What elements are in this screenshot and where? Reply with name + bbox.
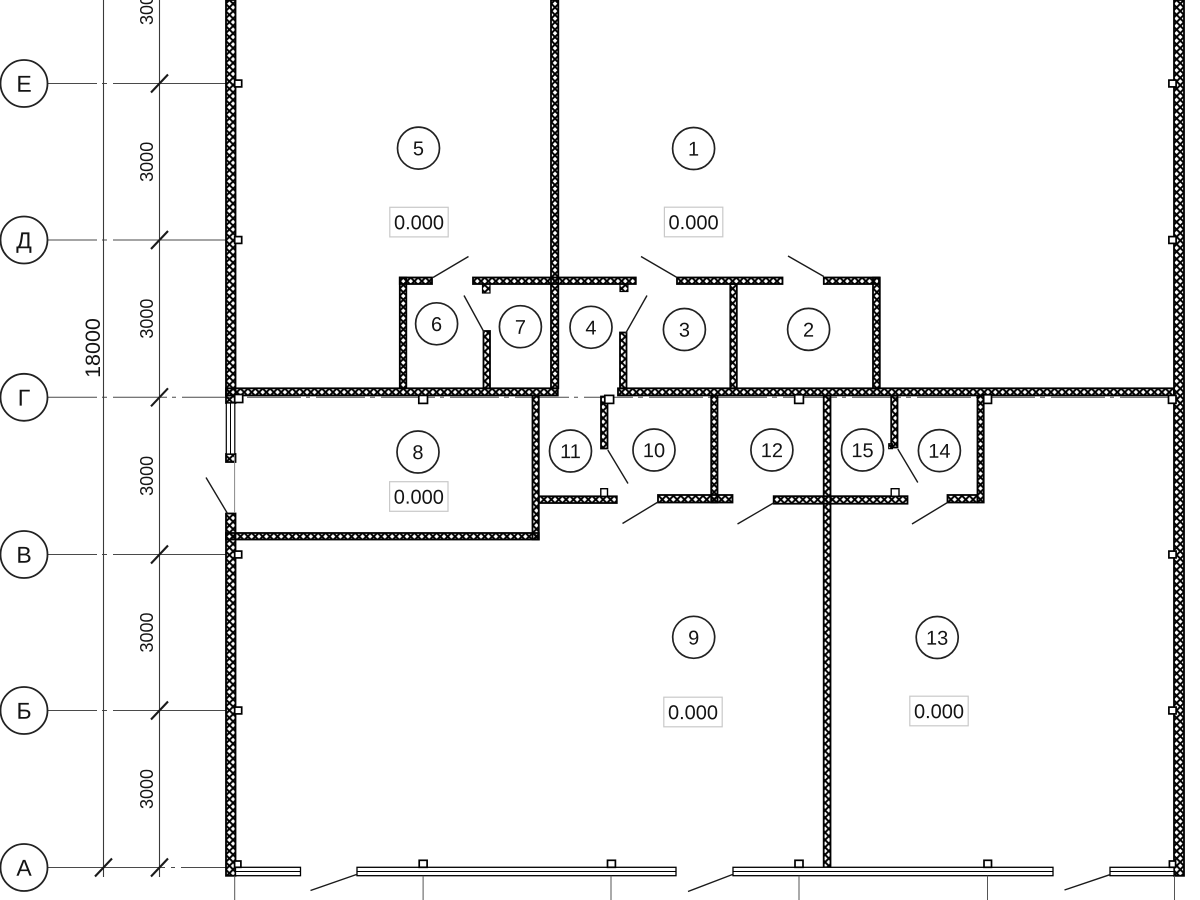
svg-text:3000: 3000 [137, 769, 157, 809]
svg-text:Г: Г [18, 385, 31, 411]
svg-text:10: 10 [643, 440, 665, 462]
svg-text:6: 6 [431, 314, 442, 336]
svg-text:4: 4 [585, 317, 596, 339]
svg-text:В: В [16, 542, 31, 568]
svg-text:9: 9 [688, 627, 699, 649]
svg-text:18000: 18000 [81, 318, 105, 378]
svg-text:3000: 3000 [137, 456, 157, 496]
svg-text:5: 5 [413, 138, 424, 160]
svg-text:А: А [16, 855, 32, 881]
svg-text:8: 8 [412, 442, 423, 464]
svg-text:Д: Д [16, 227, 32, 253]
svg-text:1: 1 [688, 139, 699, 161]
svg-text:0.000: 0.000 [669, 212, 719, 234]
svg-text:15: 15 [851, 440, 873, 462]
svg-text:3000: 3000 [137, 142, 157, 182]
svg-text:0.000: 0.000 [668, 702, 718, 724]
svg-text:12: 12 [761, 440, 783, 462]
svg-text:0.000: 0.000 [394, 487, 444, 509]
svg-text:13: 13 [926, 628, 948, 650]
svg-text:11: 11 [560, 441, 581, 463]
svg-text:2: 2 [803, 320, 814, 342]
svg-text:7: 7 [515, 317, 526, 339]
svg-text:3000: 3000 [137, 0, 157, 25]
svg-text:14: 14 [928, 441, 950, 463]
svg-text:3000: 3000 [137, 299, 157, 339]
svg-text:3000: 3000 [137, 612, 157, 652]
svg-text:0.000: 0.000 [914, 701, 964, 723]
svg-text:Б: Б [16, 698, 31, 724]
svg-text:Е: Е [16, 71, 31, 97]
svg-text:3: 3 [679, 320, 690, 342]
svg-text:0.000: 0.000 [394, 212, 444, 234]
